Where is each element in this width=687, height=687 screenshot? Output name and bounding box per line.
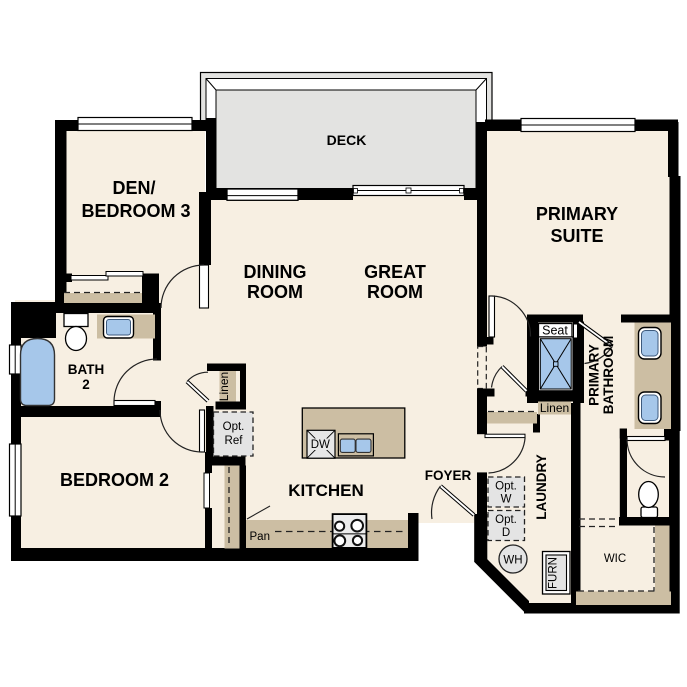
- svg-text:W: W: [501, 494, 512, 506]
- svg-text:FOYER: FOYER: [425, 468, 472, 483]
- svg-text:Opt.: Opt.: [495, 514, 517, 526]
- svg-text:ROOM: ROOM: [367, 282, 423, 302]
- svg-text:FURN: FURN: [548, 557, 560, 589]
- svg-text:GREAT: GREAT: [364, 262, 426, 282]
- svg-text:BATH: BATH: [68, 362, 105, 377]
- svg-text:Pan: Pan: [250, 531, 270, 543]
- svg-text:Linen: Linen: [540, 401, 569, 415]
- svg-text:BEDROOM 2: BEDROOM 2: [60, 470, 169, 490]
- svg-text:ROOM: ROOM: [247, 282, 303, 302]
- svg-text:PRIMARY: PRIMARY: [536, 204, 618, 224]
- svg-text:WH: WH: [503, 555, 522, 567]
- svg-text:Linen: Linen: [217, 372, 231, 401]
- svg-text:WIC: WIC: [604, 553, 626, 565]
- svg-text:Ref: Ref: [225, 435, 244, 447]
- svg-text:Seat: Seat: [542, 324, 568, 338]
- svg-text:Opt.: Opt.: [223, 421, 245, 433]
- svg-text:DECK: DECK: [327, 132, 367, 148]
- svg-text:BEDROOM 3: BEDROOM 3: [81, 201, 190, 221]
- svg-text:PRIMARY: PRIMARY: [587, 344, 602, 406]
- svg-text:Opt.: Opt.: [495, 481, 517, 493]
- svg-text:DINING: DINING: [244, 262, 307, 282]
- svg-text:KITCHEN: KITCHEN: [288, 481, 364, 500]
- svg-text:DEN/: DEN/: [112, 178, 155, 198]
- svg-text:2: 2: [82, 377, 90, 392]
- svg-text:BATHROOM: BATHROOM: [601, 336, 616, 415]
- svg-text:D: D: [502, 527, 510, 539]
- svg-text:LAUNDRY: LAUNDRY: [534, 454, 549, 520]
- svg-text:SUITE: SUITE: [550, 226, 603, 246]
- svg-text:DW: DW: [311, 439, 330, 451]
